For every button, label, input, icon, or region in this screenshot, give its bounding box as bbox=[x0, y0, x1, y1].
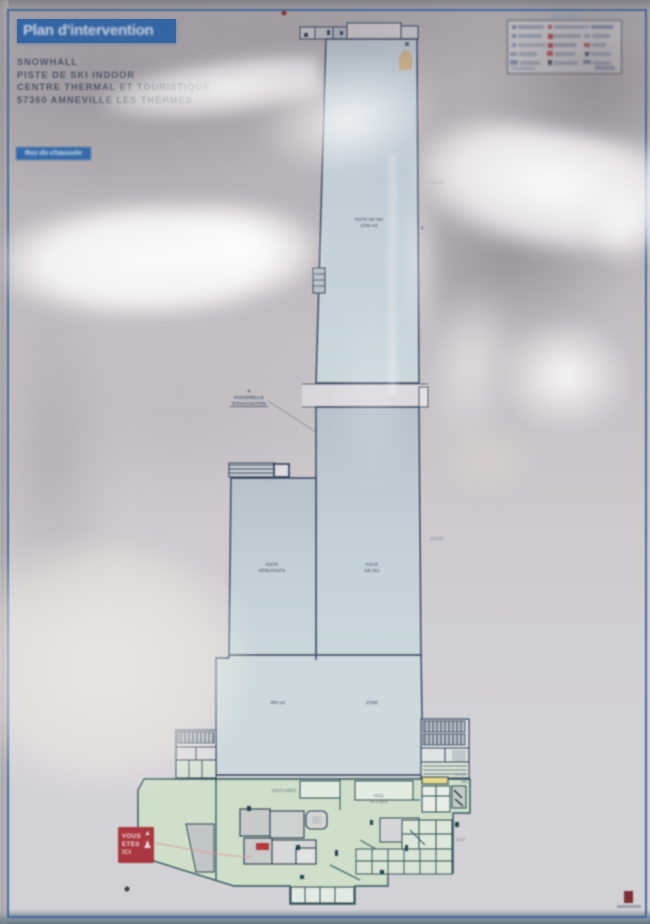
svg-text:2765 m2: 2765 m2 bbox=[360, 223, 378, 228]
svg-text:PISTE: PISTE bbox=[266, 562, 279, 567]
svg-text:18.0: 18.0 bbox=[456, 837, 465, 842]
svg-text:850 m2: 850 m2 bbox=[271, 700, 286, 705]
svg-text:ZONE: ZONE bbox=[366, 700, 378, 705]
svg-text:ACCUEIL: ACCUEIL bbox=[370, 799, 389, 804]
svg-text:DEBUTANTS: DEBUTANTS bbox=[259, 568, 286, 573]
svg-text:DE SKI: DE SKI bbox=[365, 568, 380, 573]
svg-text:PISTE DE SKI: PISTE DE SKI bbox=[355, 217, 384, 222]
svg-text:WC: WC bbox=[462, 779, 469, 784]
svg-text:104.00: 104.00 bbox=[430, 536, 444, 541]
svg-text:PISTE: PISTE bbox=[366, 562, 379, 567]
svg-text:HALL: HALL bbox=[374, 793, 385, 798]
svg-text:24.00: 24.00 bbox=[455, 772, 467, 777]
svg-text:VESTIAIRES: VESTIAIRES bbox=[272, 788, 297, 793]
